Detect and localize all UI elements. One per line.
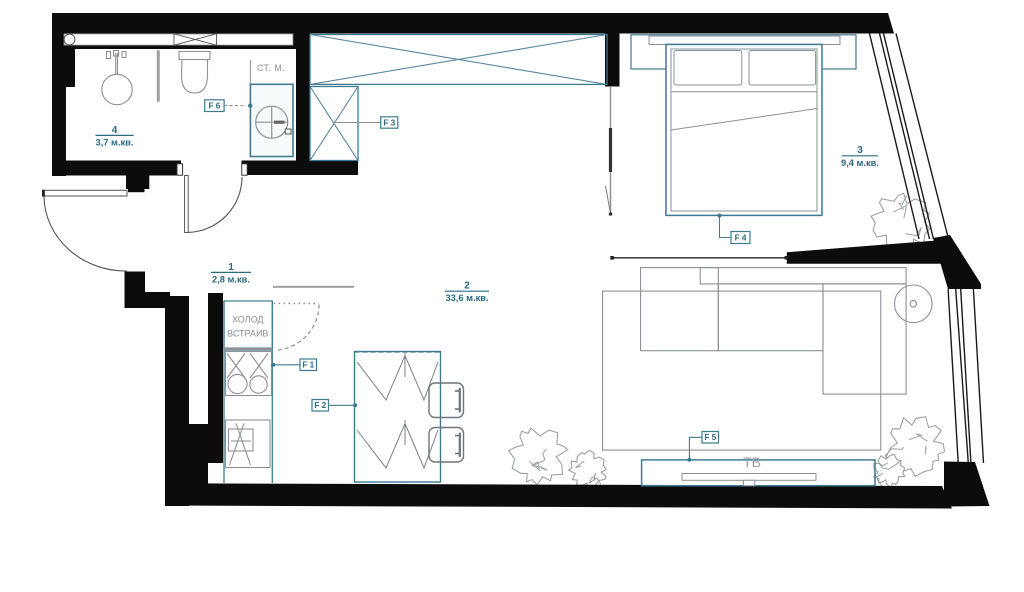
- svg-text:33,6 м.кв.: 33,6 м.кв.: [445, 293, 488, 303]
- svg-text:ВСТРАИВ: ВСТРАИВ: [227, 329, 268, 339]
- svg-text:ХОЛОД: ХОЛОД: [232, 315, 263, 325]
- svg-text:3,7 м.кв.: 3,7 м.кв.: [96, 137, 134, 147]
- svg-text:3: 3: [857, 145, 863, 156]
- svg-text:2,8 м.кв.: 2,8 м.кв.: [212, 274, 250, 284]
- svg-text:1: 1: [228, 262, 234, 273]
- svg-text:2: 2: [464, 281, 470, 292]
- svg-text:ТВ: ТВ: [743, 454, 761, 470]
- svg-text:F 4: F 4: [735, 233, 747, 242]
- svg-text:F 1: F 1: [302, 361, 314, 370]
- svg-text:F 6: F 6: [208, 101, 220, 110]
- svg-text:F 3: F 3: [383, 118, 395, 127]
- svg-text:F 5: F 5: [704, 433, 716, 442]
- svg-text:4: 4: [112, 125, 118, 136]
- svg-text:F 2: F 2: [314, 401, 326, 410]
- svg-text:СТ. М.: СТ. М.: [257, 63, 285, 73]
- svg-text:9,4 м.кв.: 9,4 м.кв.: [841, 158, 879, 168]
